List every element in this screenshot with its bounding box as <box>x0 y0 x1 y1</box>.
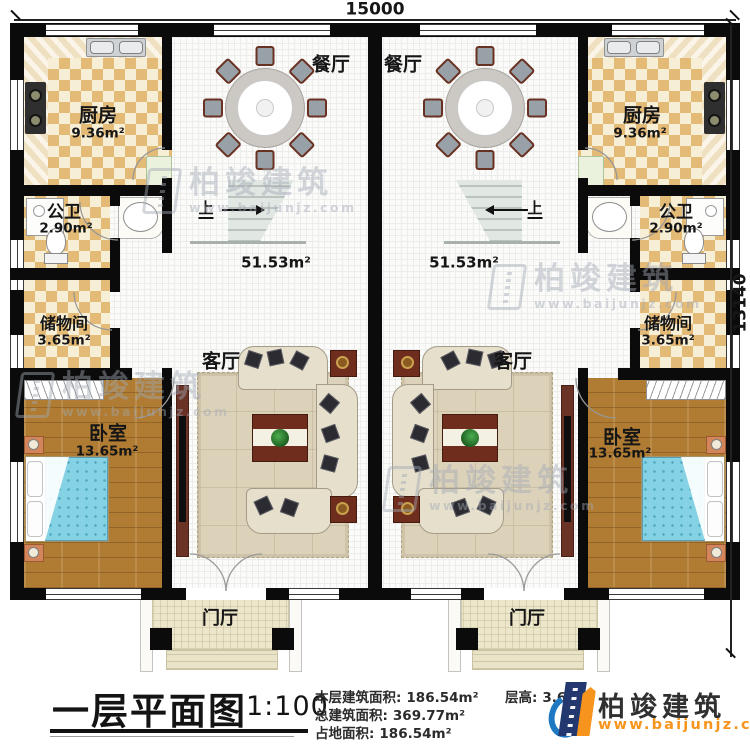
area-label-hall-left: 51.53m² <box>241 256 311 271</box>
watermark: 柏竣建筑 www.baijunjz.com <box>490 264 702 311</box>
stat-value: 186.54m² <box>379 726 451 742</box>
stairs-up-label-left: 上 <box>198 201 213 219</box>
watermark-building-icon <box>142 168 182 214</box>
room-label-bedroom-left: 卧室 <box>89 425 127 444</box>
dimension-height-label: 13140 <box>733 273 750 332</box>
area-label-hall-right: 51.53m² <box>429 256 499 271</box>
watermark-url: www.baijunjz.com <box>429 500 597 513</box>
floor-plan-page: 15000 13140 餐厅 厨房 9.36m² 公卫 2.90m² 储物间 3… <box>0 0 750 748</box>
room-label-dining-right: 餐厅 <box>384 56 422 75</box>
watermark-name: 柏竣建筑 <box>429 466 597 497</box>
stat-total-area: 总建筑面积:369.77m² <box>315 704 465 724</box>
room-label-storage-left: 储物间 <box>40 316 88 332</box>
room-label-foyer-left: 门厅 <box>202 610 238 628</box>
watermark-name: 柏竣建筑 <box>189 168 357 199</box>
overlay: 15000 13140 餐厅 厨房 9.36m² 公卫 2.90m² 储物间 3… <box>0 0 750 675</box>
area-label-storage-right: 3.65m² <box>641 334 694 348</box>
watermark-name: 柏竣建筑 <box>62 372 230 403</box>
stairs-up-label-right: 上 <box>527 201 542 219</box>
room-label-living-left: 客厅 <box>202 353 240 372</box>
area-label-bedroom-right: 13.65m² <box>589 447 652 461</box>
room-label-kitchen-right: 厨房 <box>623 107 661 126</box>
dimension-line-right <box>730 25 732 657</box>
stat-label: 占地面积: <box>315 726 374 742</box>
room-label-dining-left: 餐厅 <box>312 56 350 75</box>
brand-logo-icon <box>549 680 595 740</box>
room-label-living-right: 客厅 <box>494 353 532 372</box>
watermark-url: www.baijunjz.com <box>189 202 357 215</box>
title-block: 一层平面图 1:100 本层建筑面积:186.54m² 总建筑面积:369.77… <box>0 675 750 748</box>
room-label-storage-right: 储物间 <box>644 316 692 332</box>
room-label-bath-left: 公卫 <box>47 205 81 222</box>
watermark: 柏竣建筑 www.baijunjz.com <box>385 466 597 513</box>
watermark-building-icon <box>15 372 55 418</box>
area-label-kitchen-right: 9.36m² <box>613 127 666 141</box>
dimension-width-label: 15000 <box>345 2 404 19</box>
area-label-storage-left: 3.65m² <box>37 334 90 348</box>
plan-title: 一层平面图 <box>52 681 247 735</box>
watermark-building-icon <box>382 466 422 512</box>
area-label-bath-right: 2.90m² <box>649 222 702 236</box>
area-label-kitchen-left: 9.36m² <box>71 127 124 141</box>
watermark-name: 柏竣建筑 <box>534 264 702 295</box>
room-label-kitchen-left: 厨房 <box>79 107 117 126</box>
title-underline-thick <box>50 729 308 733</box>
watermark: 柏竣建筑 www.baijunjz.com <box>145 168 357 215</box>
room-label-bath-right: 公卫 <box>659 205 693 222</box>
area-label-bedroom-left: 13.65m² <box>76 445 139 459</box>
watermark: 柏竣建筑 www.baijunjz.com <box>18 372 230 419</box>
area-label-bath-left: 2.90m² <box>39 222 92 236</box>
room-label-foyer-right: 门厅 <box>509 610 545 628</box>
watermark-url: www.baijunjz.com <box>534 298 702 311</box>
title-underline-thin <box>50 736 294 737</box>
stat-label: 层高: <box>505 690 537 706</box>
watermark-url: www.baijunjz.com <box>62 406 230 419</box>
stat-floor-area: 本层建筑面积:186.54m² <box>315 686 478 706</box>
stat-land-area: 占地面积:186.54m² <box>315 722 451 742</box>
brand-url: www.baijunjz.com <box>598 717 750 733</box>
